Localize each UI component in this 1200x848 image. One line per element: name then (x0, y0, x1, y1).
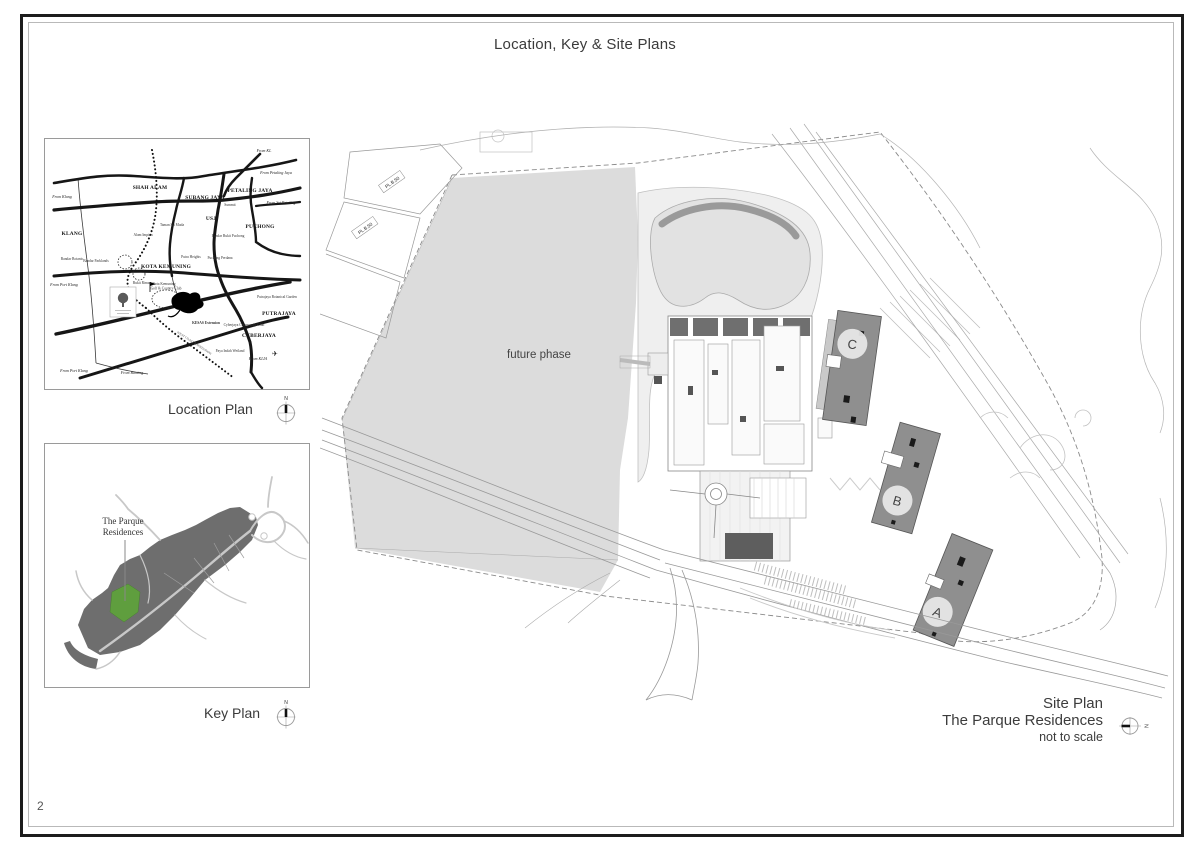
place-label: Paya Indah Wetland (216, 349, 245, 353)
place-label: Alam Impian (133, 233, 152, 237)
tower-a: A (908, 531, 993, 646)
tree-icon (118, 293, 128, 303)
key-plan-caption: Key Plan (204, 705, 260, 721)
region-label: USJ (206, 216, 216, 222)
airplane-icon: ✈ (272, 351, 278, 358)
keyplan-site-label: The Parque Residences (102, 516, 143, 537)
parcel-label-2: PL.B.50 (351, 216, 377, 238)
place-label: Putrajaya Botanical Garden (257, 295, 297, 299)
route-label: From KLIA (248, 356, 268, 361)
site-plan-drawing: PL.B.50 PL.B.50 (320, 118, 1170, 708)
region-label: PUCHONG (246, 224, 276, 230)
site-caption-line2: The Parque Residences (942, 712, 1103, 729)
page-title: Location, Key & Site Plans (0, 36, 1170, 53)
place-label: Putra Heights (181, 255, 201, 259)
region-label: PUTRAJAYA (262, 311, 296, 317)
keyplan-site-label-line1: The Parque (102, 516, 143, 526)
site-plan-caption: Site Plan The Parque Residences not to s… (942, 695, 1103, 746)
location-plan-map: SHAH ALAM SUBANG JAYA PETALING JAYA KLAN… (44, 138, 310, 390)
place-label: Puchong Perdana (207, 256, 232, 260)
place-label: Bandar Parklands (83, 259, 109, 263)
compass-n-label: N (284, 396, 288, 402)
tower-b: B (865, 420, 941, 533)
place-label: Bandar Bukit Puchong (212, 234, 245, 238)
future-phase-area (342, 167, 638, 592)
terrace-lines (880, 278, 980, 358)
route-label: From Port Klang (49, 282, 78, 287)
route-label: From Port Klang (59, 368, 88, 373)
region-label: SUBANG JAYA (185, 195, 224, 201)
place-label: Cyberjaya Community Club (224, 323, 265, 327)
place-label: Bukit Rimau (133, 281, 152, 285)
compass-n-label: N (284, 700, 288, 706)
parcel-label-1: PL.B.50 (378, 170, 404, 192)
region-label: KOTA KEMUNING (141, 264, 192, 270)
drawing-sheet: Location, Key & Site Plans (0, 0, 1200, 848)
plaza-zigzag (830, 478, 880, 490)
route-label: From KL (256, 148, 272, 153)
site-plan-north-arrow-icon: N (1117, 714, 1151, 738)
place-label: Golf & Country Club (151, 287, 182, 291)
place-label: Bandar Botanic (61, 257, 84, 261)
route-label: From Klang (51, 194, 72, 199)
tower-c: C (815, 309, 882, 425)
region-label: CYBERJAYA (242, 333, 276, 339)
site-caption-line3: not to scale (942, 729, 1103, 746)
cul-de-sac-curls (980, 410, 1091, 478)
site-caption-line1: Site Plan (942, 695, 1103, 712)
place-label: Summit (224, 203, 235, 207)
region-label: KLANG (62, 231, 83, 237)
location-plan-caption: Location Plan (168, 401, 253, 417)
page-number: 2 (37, 799, 44, 813)
place-label: KESAS Extension (192, 321, 220, 325)
place-label: Kota Kemuning (152, 282, 175, 286)
route-label: From Petaling Jaya (259, 170, 292, 175)
location-plan-north-arrow-icon: N (273, 394, 299, 426)
region-label: PETALING JAYA (227, 188, 272, 194)
route-label: From Banting (120, 370, 143, 375)
future-phase-label: future phase (507, 349, 571, 361)
place-label: Taman Sri Muda (160, 223, 185, 227)
region-label: SHAH ALAM (133, 185, 168, 191)
developer-logo-box (110, 287, 136, 317)
key-plan-map: The Parque Residences (44, 443, 310, 688)
key-plan-north-arrow-icon: N (273, 698, 299, 730)
keyplan-site-label-line2: Residences (103, 527, 144, 537)
compass-n-label: N (1143, 724, 1149, 728)
route-label: From Sri Petaling (266, 200, 296, 205)
landscape-arcs (740, 588, 895, 638)
